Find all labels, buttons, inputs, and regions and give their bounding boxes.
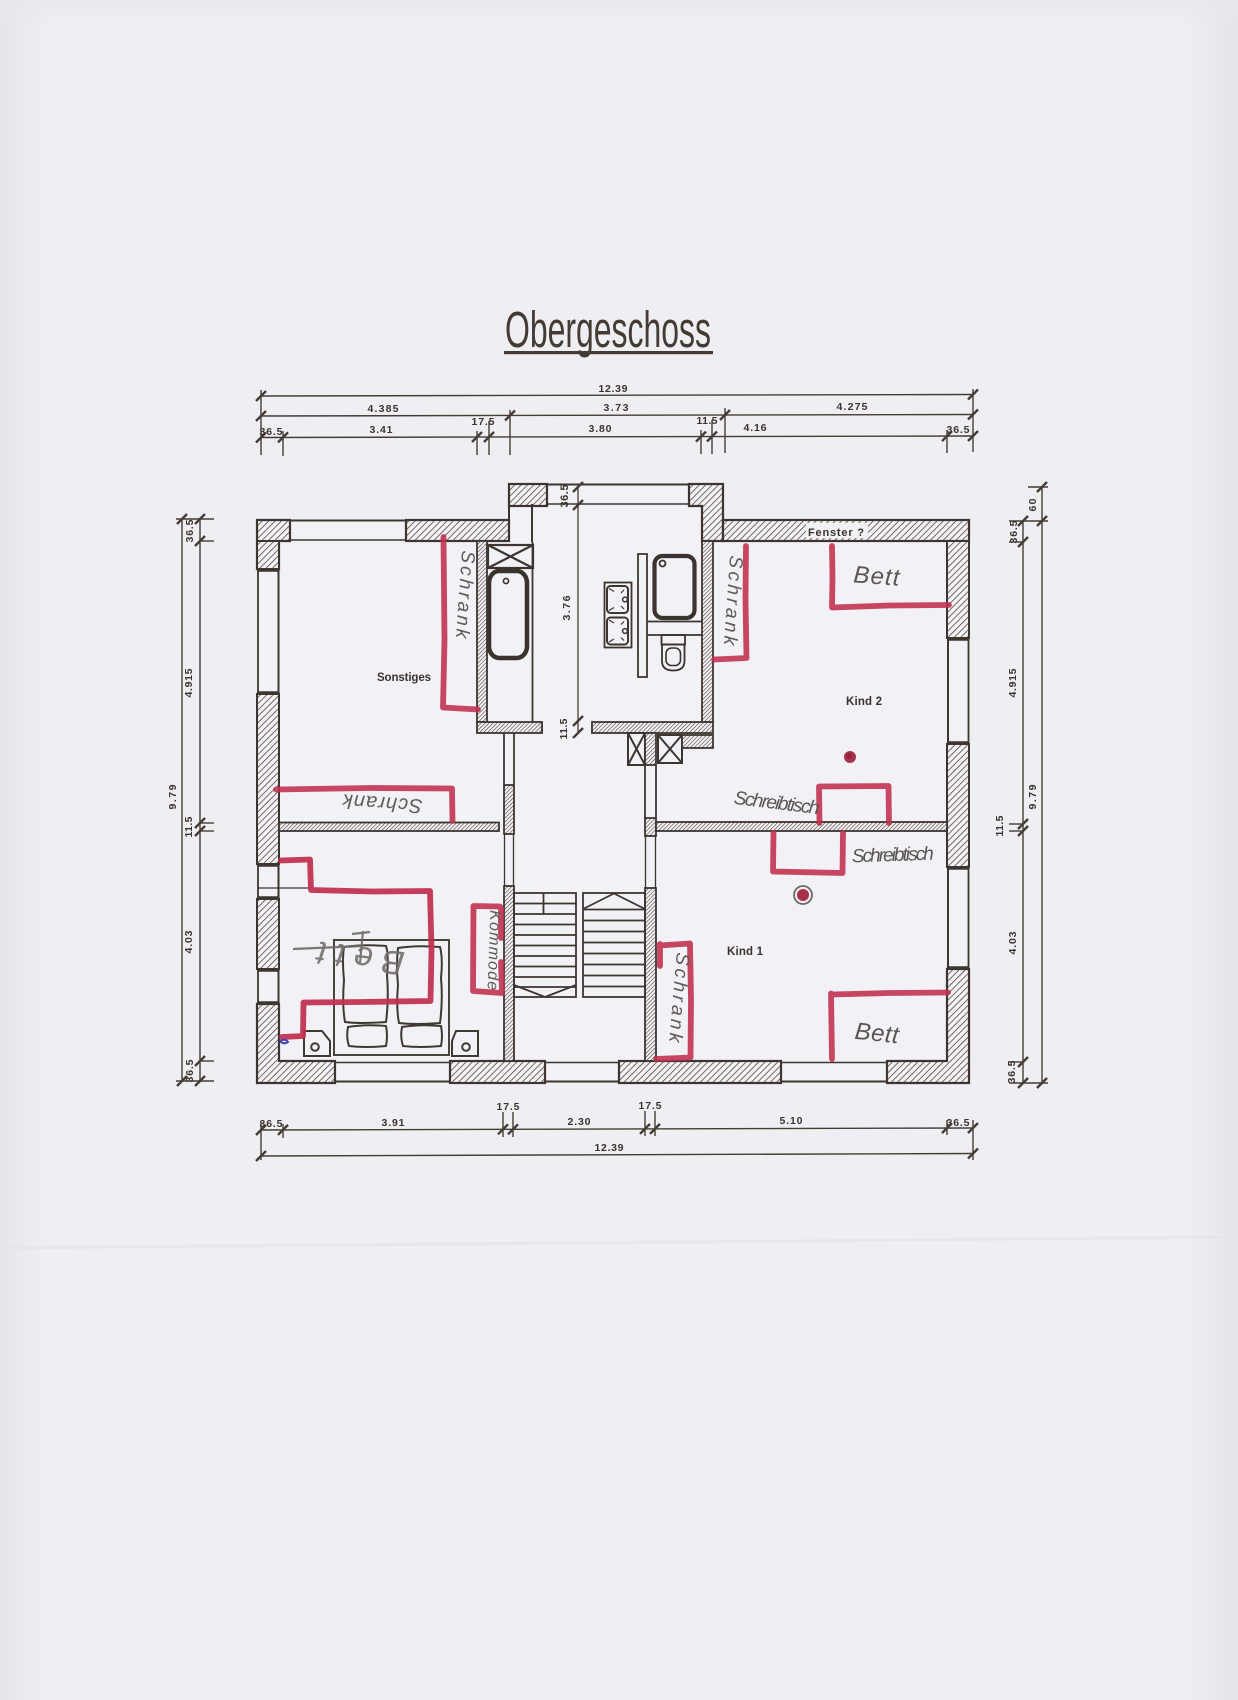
- svg-text:12.39: 12.39: [599, 383, 628, 395]
- svg-text:5.10: 5.10: [780, 1115, 803, 1127]
- svg-text:3.91: 3.91: [382, 1117, 405, 1129]
- svg-text:11.5: 11.5: [697, 415, 718, 427]
- svg-text:11.5: 11.5: [994, 815, 1006, 836]
- svg-text:17.5: 17.5: [639, 1100, 662, 1112]
- svg-text:4.03: 4.03: [183, 930, 195, 953]
- svg-text:Sonstiges: Sonstiges: [377, 672, 431, 684]
- svg-text:36.5: 36.5: [260, 1118, 283, 1130]
- svg-text:11.5: 11.5: [558, 718, 570, 739]
- svg-text:Bett: Bett: [853, 561, 902, 591]
- svg-text:36.5: 36.5: [260, 426, 283, 438]
- svg-text:36.5: 36.5: [1008, 520, 1020, 543]
- svg-text:17.5: 17.5: [472, 416, 495, 428]
- svg-text:Kind 1: Kind 1: [727, 946, 764, 958]
- svg-text:Obergeschoss: Obergeschoss: [505, 301, 711, 358]
- svg-text:3.41: 3.41: [370, 424, 393, 436]
- svg-text:Fenster ?: Fenster ?: [808, 527, 864, 539]
- svg-text:2.30: 2.30: [568, 1116, 591, 1128]
- svg-text:36.5: 36.5: [184, 1059, 196, 1082]
- svg-text:3.73: 3.73: [604, 402, 629, 414]
- svg-text:36.5: 36.5: [947, 424, 970, 436]
- svg-text:Kind 2: Kind 2: [846, 696, 882, 708]
- svg-text:17.5: 17.5: [497, 1101, 520, 1113]
- svg-text:9.79: 9.79: [1027, 784, 1039, 809]
- svg-text:Schreibtisch: Schreibtisch: [851, 844, 934, 868]
- svg-text:9.79: 9.79: [167, 784, 179, 809]
- svg-text:3.80: 3.80: [589, 423, 612, 435]
- svg-text:60: 60: [1027, 498, 1039, 511]
- svg-text:12.39: 12.39: [595, 1142, 624, 1154]
- svg-text:4.385: 4.385: [368, 403, 399, 415]
- svg-text:Bett: Bett: [853, 1018, 901, 1050]
- svg-text:4.275: 4.275: [837, 401, 868, 413]
- svg-text:36.5: 36.5: [184, 519, 196, 542]
- svg-text:36.5: 36.5: [559, 485, 571, 508]
- svg-text:4.16: 4.16: [744, 422, 767, 434]
- svg-text:Kommode: Kommode: [484, 910, 504, 991]
- svg-text:3.76: 3.76: [561, 595, 573, 620]
- svg-text:4.03: 4.03: [1007, 931, 1019, 954]
- svg-text:4.915: 4.915: [1007, 668, 1019, 697]
- svg-text:36.5: 36.5: [1006, 1060, 1018, 1083]
- svg-text:36.5: 36.5: [947, 1117, 970, 1129]
- svg-text:11.5: 11.5: [183, 816, 195, 837]
- svg-text:4.915: 4.915: [183, 668, 195, 697]
